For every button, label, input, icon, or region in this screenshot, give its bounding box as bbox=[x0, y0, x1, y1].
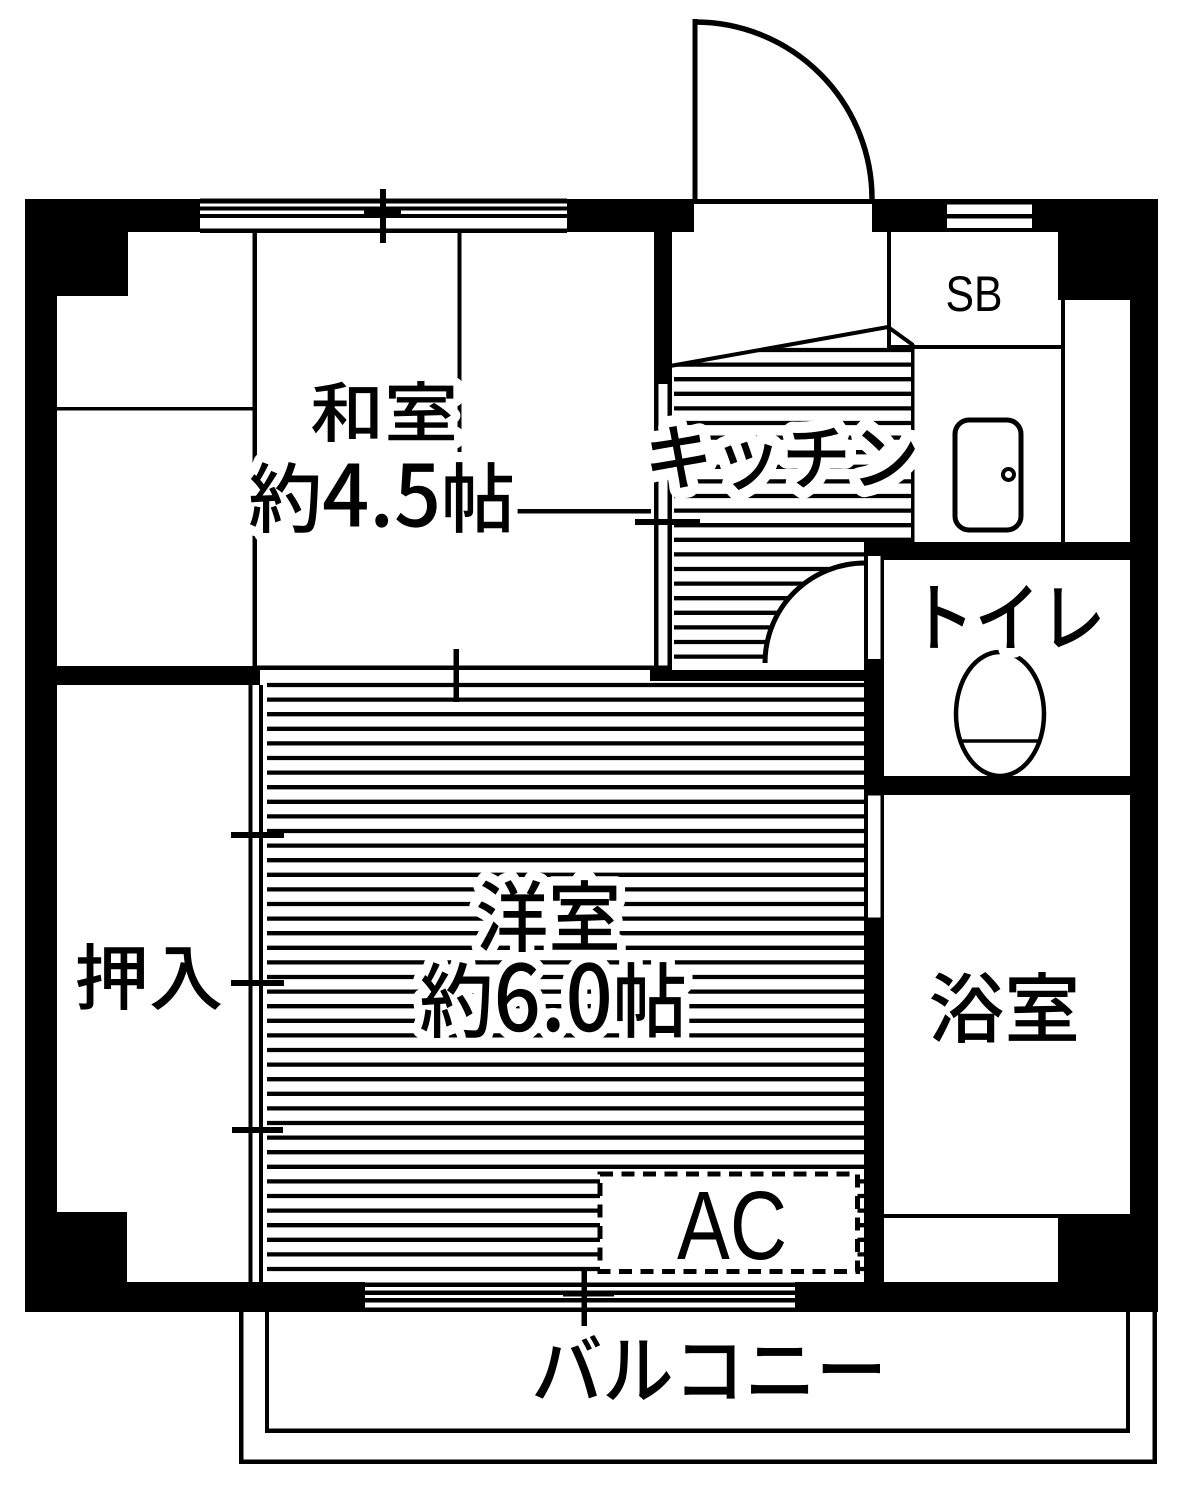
svg-text:SB: SB bbox=[946, 266, 1003, 322]
svg-text:AC: AC bbox=[677, 1171, 787, 1280]
